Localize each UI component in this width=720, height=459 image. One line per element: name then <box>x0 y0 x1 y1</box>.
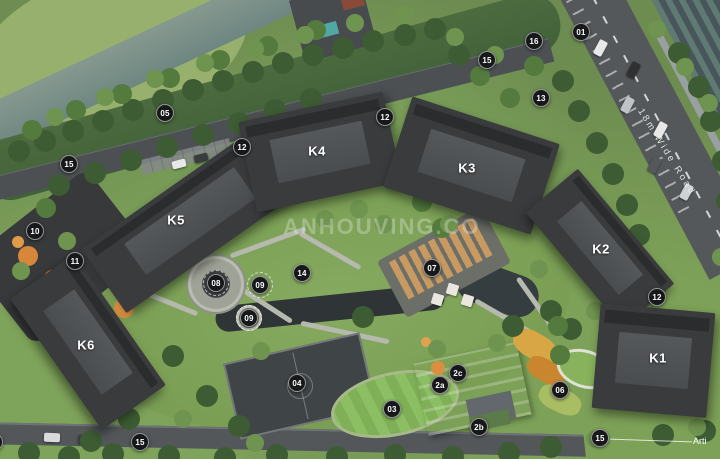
building-label-k1: K1 <box>649 351 667 366</box>
marker-03[interactable]: 03 <box>383 400 401 418</box>
marker-16[interactable]: 16 <box>525 32 543 50</box>
marker-2b[interactable]: 2b <box>470 418 488 436</box>
marker-12[interactable]: 12 <box>376 108 394 126</box>
marker-14[interactable]: 14 <box>293 264 311 282</box>
edge-label: Arti <box>693 436 707 446</box>
marker-2c[interactable]: 2c <box>449 364 467 382</box>
marker-04[interactable]: 04 <box>288 374 306 392</box>
marker-12[interactable]: 12 <box>233 138 251 156</box>
marker-09[interactable]: 09 <box>240 309 258 327</box>
marker-13[interactable]: 13 <box>532 89 550 107</box>
marker-10[interactable]: 10 <box>26 222 44 240</box>
marker-11[interactable]: 11 <box>66 252 84 270</box>
marker-06[interactable]: 06 <box>551 381 569 399</box>
building-label-k4: K4 <box>308 144 326 159</box>
marker-09[interactable]: 09 <box>251 276 269 294</box>
building-label-k6: K6 <box>77 338 95 353</box>
marker-08[interactable]: 08 <box>207 274 225 292</box>
marker-15[interactable]: 15 <box>60 155 78 173</box>
building-label-k3: K3 <box>458 161 476 176</box>
building-label-k5: K5 <box>167 213 185 228</box>
watermark: ANHOUVING.CO <box>283 214 481 240</box>
site-plan: ANHOUVING.CO 18m Wide Road Arti K5K4K3K2… <box>0 0 720 459</box>
car <box>78 435 94 445</box>
orange-trees <box>18 246 38 266</box>
marker-15[interactable]: 15 <box>591 429 609 447</box>
tree-canopy-light <box>0 0 18 18</box>
car <box>171 158 187 169</box>
marker-15[interactable]: 15 <box>131 433 149 451</box>
building-label-k2: K2 <box>592 242 610 257</box>
marker-2a[interactable]: 2a <box>431 376 449 394</box>
marker-05[interactable]: 05 <box>156 104 174 122</box>
marker-12[interactable]: 12 <box>648 288 666 306</box>
car <box>44 433 60 443</box>
marker-15[interactable]: 15 <box>478 51 496 69</box>
marker-07[interactable]: 07 <box>423 259 441 277</box>
marker-01[interactable]: 01 <box>572 23 590 41</box>
